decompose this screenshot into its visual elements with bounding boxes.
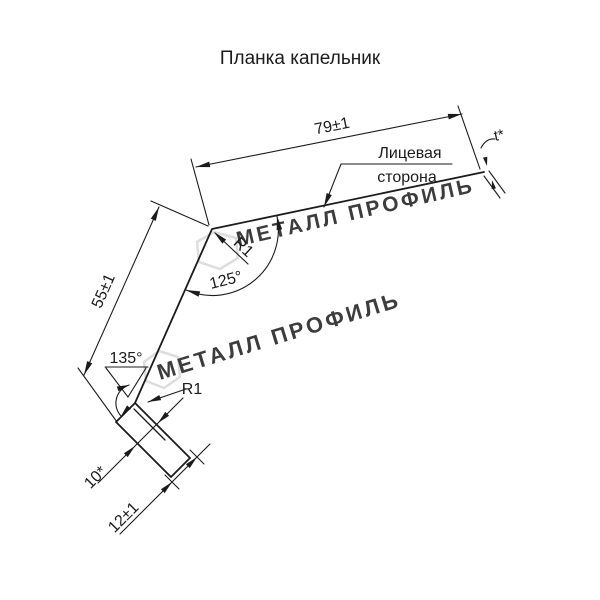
arrow-thickness-upper xyxy=(483,157,489,167)
dim-55-label: 55±1 xyxy=(89,271,119,310)
dim-79-ext-right xyxy=(458,106,480,169)
dim-55-ext-top xyxy=(151,201,208,226)
profile-hook xyxy=(116,403,190,477)
thickness-ext-lines xyxy=(484,171,505,198)
arrow-arc125-bottom xyxy=(185,287,200,296)
radius-bottom-label: R1 xyxy=(182,381,203,398)
angle-125-label: 125° xyxy=(208,268,244,293)
arrow-radius-bottom xyxy=(147,395,161,405)
page-title: Планка капельник xyxy=(220,48,381,69)
dim-79-ext-left xyxy=(191,159,209,225)
watermark-layer: МЕТАЛЛ ПРОФИЛЬ МЕТАЛЛ ПРОФИЛЬ xyxy=(144,174,477,388)
arrow-79-left xyxy=(195,162,210,170)
arrow-55-top xyxy=(151,206,162,221)
dim-55-ext-bottom xyxy=(78,368,117,422)
arrow-12-left xyxy=(161,480,174,493)
drawing-canvas: МЕТАЛЛ ПРОФИЛЬ МЕТАЛЛ ПРОФИЛЬ xyxy=(0,0,600,600)
thickness-leader-curl xyxy=(481,139,495,148)
watermark-text-upper: МЕТАЛЛ ПРОФИЛЬ xyxy=(234,174,477,251)
profile-hem-fold-line xyxy=(134,409,165,440)
watermark-text-lower: МЕТАЛЛ ПРОФИЛЬ xyxy=(154,287,404,385)
dim-79-label: 79±1 xyxy=(313,115,351,139)
dim-10-label: 10* xyxy=(81,463,110,492)
thickness-label: t* xyxy=(492,126,505,145)
angle-135-label: 135° xyxy=(109,350,142,367)
technical-drawing: МЕТАЛЛ ПРОФИЛЬ МЕТАЛЛ ПРОФИЛЬ xyxy=(0,0,600,600)
labels-layer: Планка капельник 79±1 t* Лицевая сторона… xyxy=(81,48,506,536)
arrow-10-low xyxy=(124,444,137,457)
dim-10-line xyxy=(98,398,183,483)
face-side-label-line2: сторона xyxy=(377,169,437,186)
arrow-10-high xyxy=(156,412,169,425)
arrow-55-bottom xyxy=(81,361,92,376)
angle-135-leader-left xyxy=(106,368,128,397)
face-side-label-line1: Лицевая xyxy=(378,145,441,162)
